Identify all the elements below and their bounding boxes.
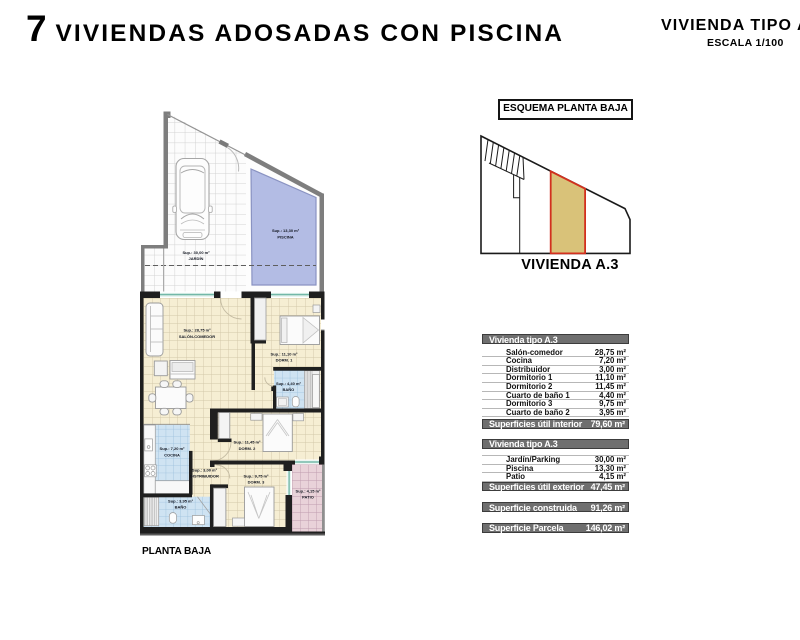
- svg-text:PATIO: PATIO: [302, 495, 314, 500]
- svg-text:COCINA: COCINA: [164, 453, 180, 458]
- svg-text:Sup.: 13,30 m²: Sup.: 13,30 m²: [272, 228, 300, 233]
- svg-text:Sup.: 3,95 m²: Sup.: 3,95 m²: [168, 499, 194, 504]
- svg-text:Sup.: 11,10 m²: Sup.: 11,10 m²: [271, 352, 299, 357]
- svg-text:Sup.: 11,45 m²: Sup.: 11,45 m²: [234, 440, 262, 445]
- svg-text:Sup.: 3,00 m²: Sup.: 3,00 m²: [192, 468, 218, 473]
- svg-text:BAÑO: BAÑO: [283, 387, 295, 392]
- svg-text:DISTRIBUIDOR: DISTRIBUIDOR: [190, 474, 219, 479]
- svg-text:SALÓN-COMEDOR: SALÓN-COMEDOR: [179, 334, 215, 339]
- svg-text:Sup.: 4,40 m²: Sup.: 4,40 m²: [276, 381, 302, 386]
- svg-text:DORM. 2: DORM. 2: [239, 446, 256, 451]
- svg-text:JARDÍN: JARDÍN: [189, 256, 204, 261]
- svg-text:DORM. 1: DORM. 1: [276, 358, 293, 363]
- svg-text:PISCINA: PISCINA: [277, 235, 293, 240]
- svg-text:Sup.: 28,75 m²: Sup.: 28,75 m²: [183, 328, 211, 333]
- svg-text:DORM. 3: DORM. 3: [248, 480, 265, 485]
- svg-text:Sup.: 7,20 m²: Sup.: 7,20 m²: [160, 446, 186, 451]
- svg-text:Sup.: 9,75 m²: Sup.: 9,75 m²: [244, 474, 270, 479]
- svg-text:Sup.: 30,00 m²: Sup.: 30,00 m²: [182, 250, 210, 255]
- svg-text:BAÑO: BAÑO: [175, 505, 187, 510]
- svg-text:Sup.: 4,15 m²: Sup.: 4,15 m²: [296, 489, 322, 494]
